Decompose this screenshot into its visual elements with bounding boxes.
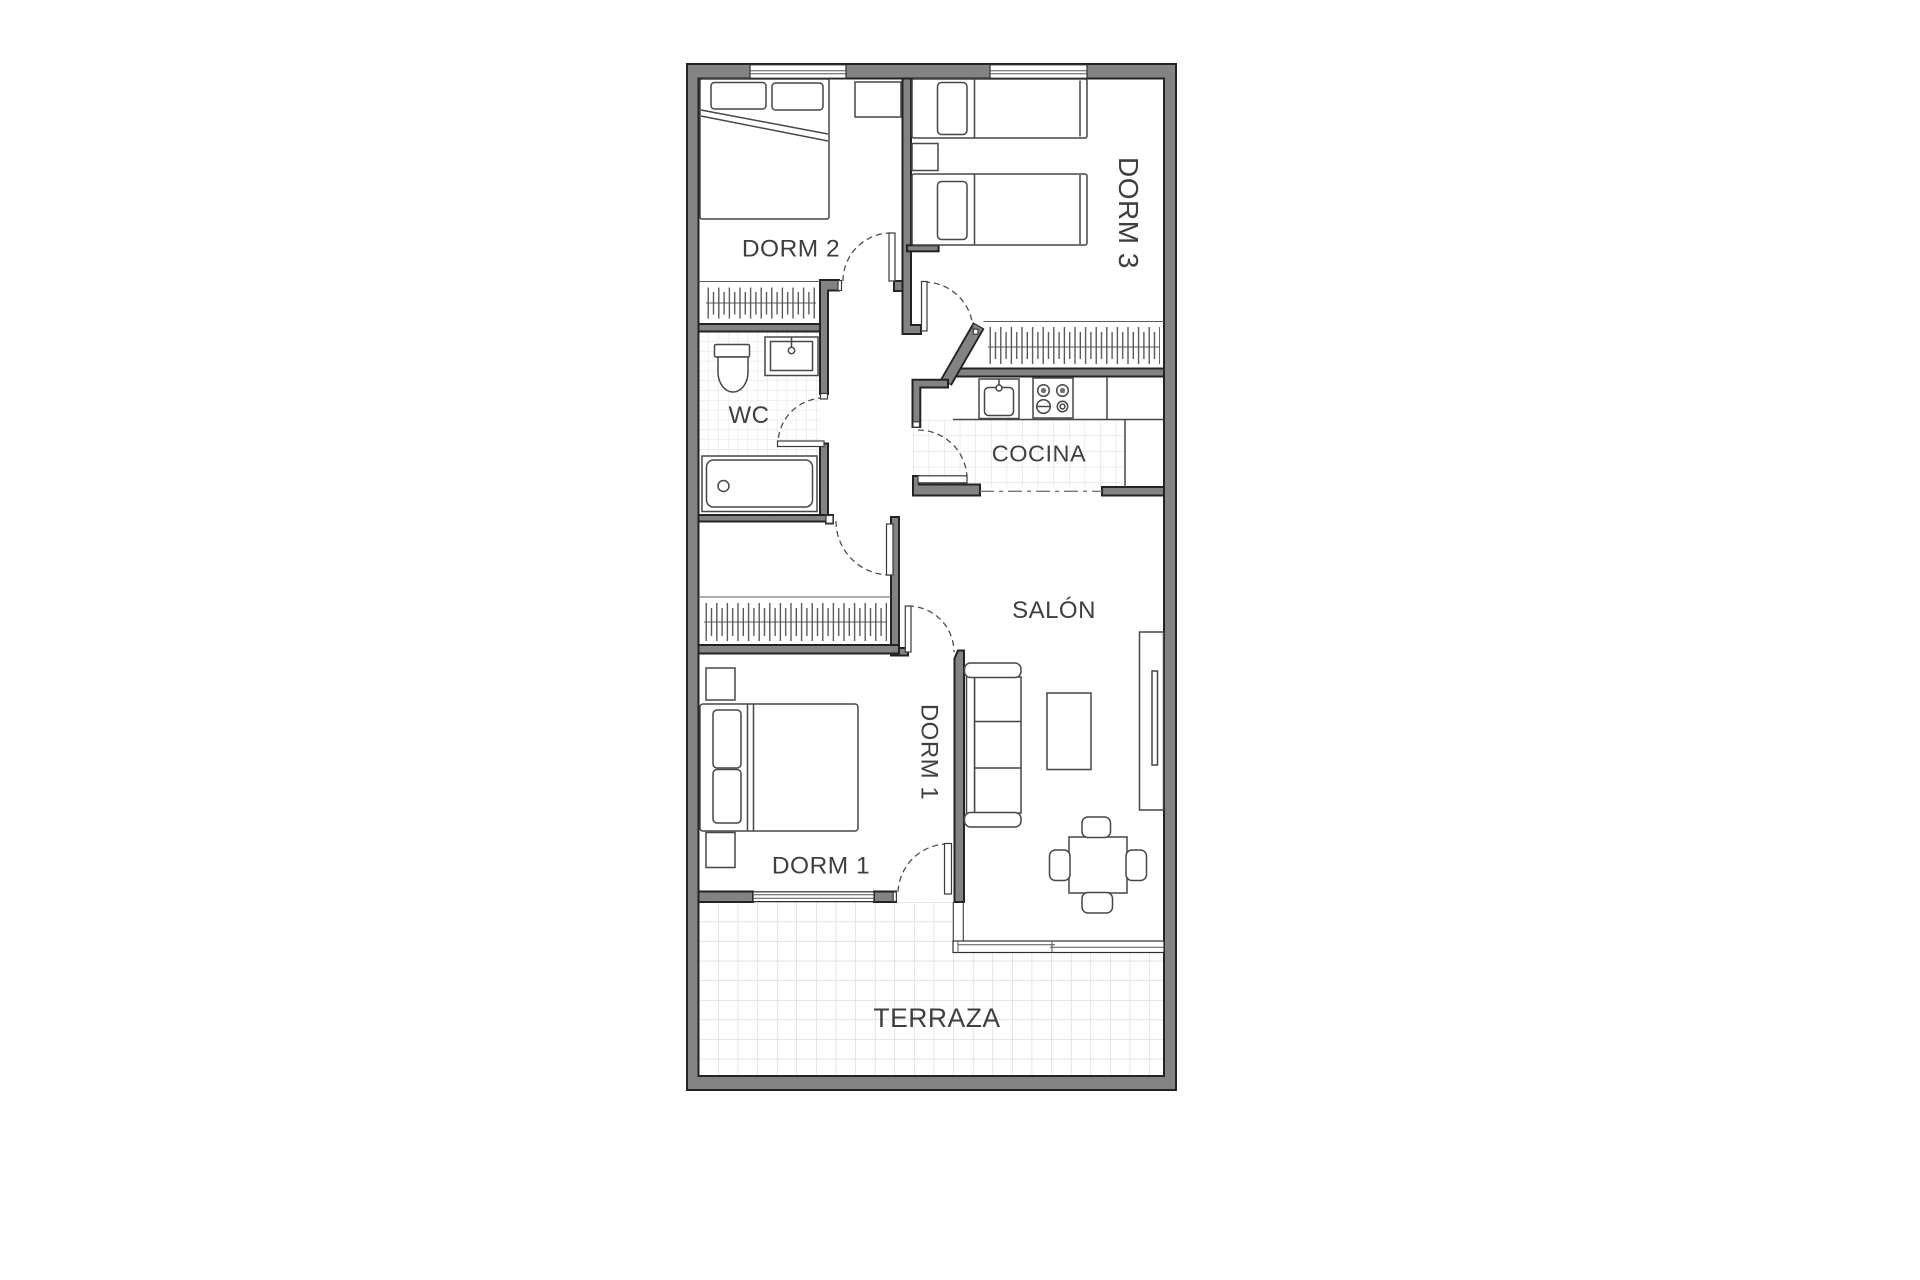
svg-text:DORM 1: DORM 1 bbox=[772, 853, 870, 880]
svg-text:SALÓN: SALÓN bbox=[1012, 597, 1096, 624]
svg-text:DORM 1: DORM 1 bbox=[916, 704, 943, 800]
svg-text:WC: WC bbox=[729, 402, 770, 429]
svg-text:DORM 2: DORM 2 bbox=[742, 236, 840, 263]
svg-text:TERRAZA: TERRAZA bbox=[873, 1003, 1000, 1033]
svg-text:COCINA: COCINA bbox=[992, 441, 1086, 467]
svg-text:DORM 3: DORM 3 bbox=[1113, 157, 1144, 269]
